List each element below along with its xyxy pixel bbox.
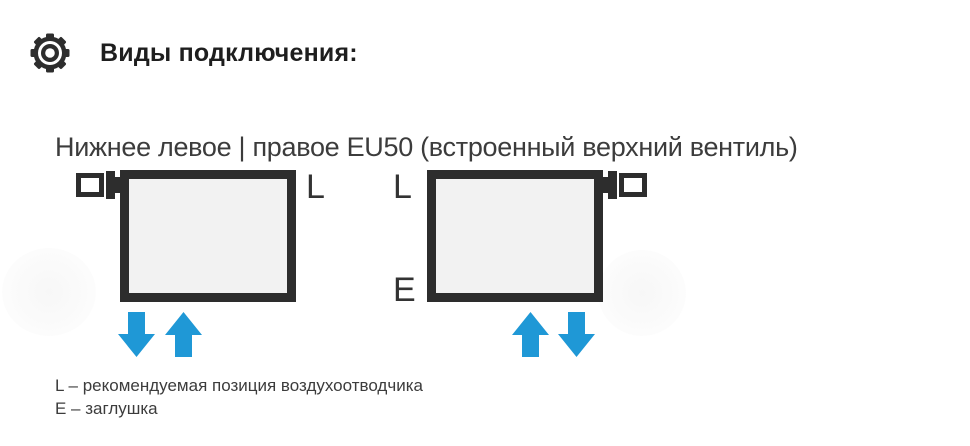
background-blob-right: [598, 250, 686, 336]
valve-cap-right: [619, 173, 647, 197]
legend: L – рекомендуемая позиция воздухоотводчи…: [55, 374, 423, 420]
connection-subtitle: Нижнее левое | правое EU50 (встроенный в…: [55, 131, 798, 163]
connection-types-infographic: Виды подключения: Нижнее левое | правое …: [0, 0, 970, 446]
arrow-up-icon: [512, 312, 549, 357]
legend-line-plug: E – заглушка: [55, 397, 423, 420]
legend-line-air-vent: L – рекомендуемая позиция воздухоотводчи…: [55, 374, 423, 397]
background-blob-left: [2, 248, 96, 336]
valve-cap-left: [76, 173, 104, 197]
radiator-left: [120, 170, 296, 302]
air-vent-marker-left: L: [306, 170, 325, 204]
plug-marker-right: E: [393, 273, 416, 307]
gear-icon: [28, 31, 72, 75]
arrow-up-icon: [165, 312, 202, 357]
valve-stem-left: [106, 171, 115, 199]
radiator-right: [427, 170, 603, 302]
arrow-down-icon: [558, 312, 595, 357]
valve-stem-right: [608, 171, 617, 199]
air-vent-marker-right: L: [393, 170, 412, 204]
arrow-down-icon: [118, 312, 155, 357]
page-title: Виды подключения:: [100, 39, 358, 67]
